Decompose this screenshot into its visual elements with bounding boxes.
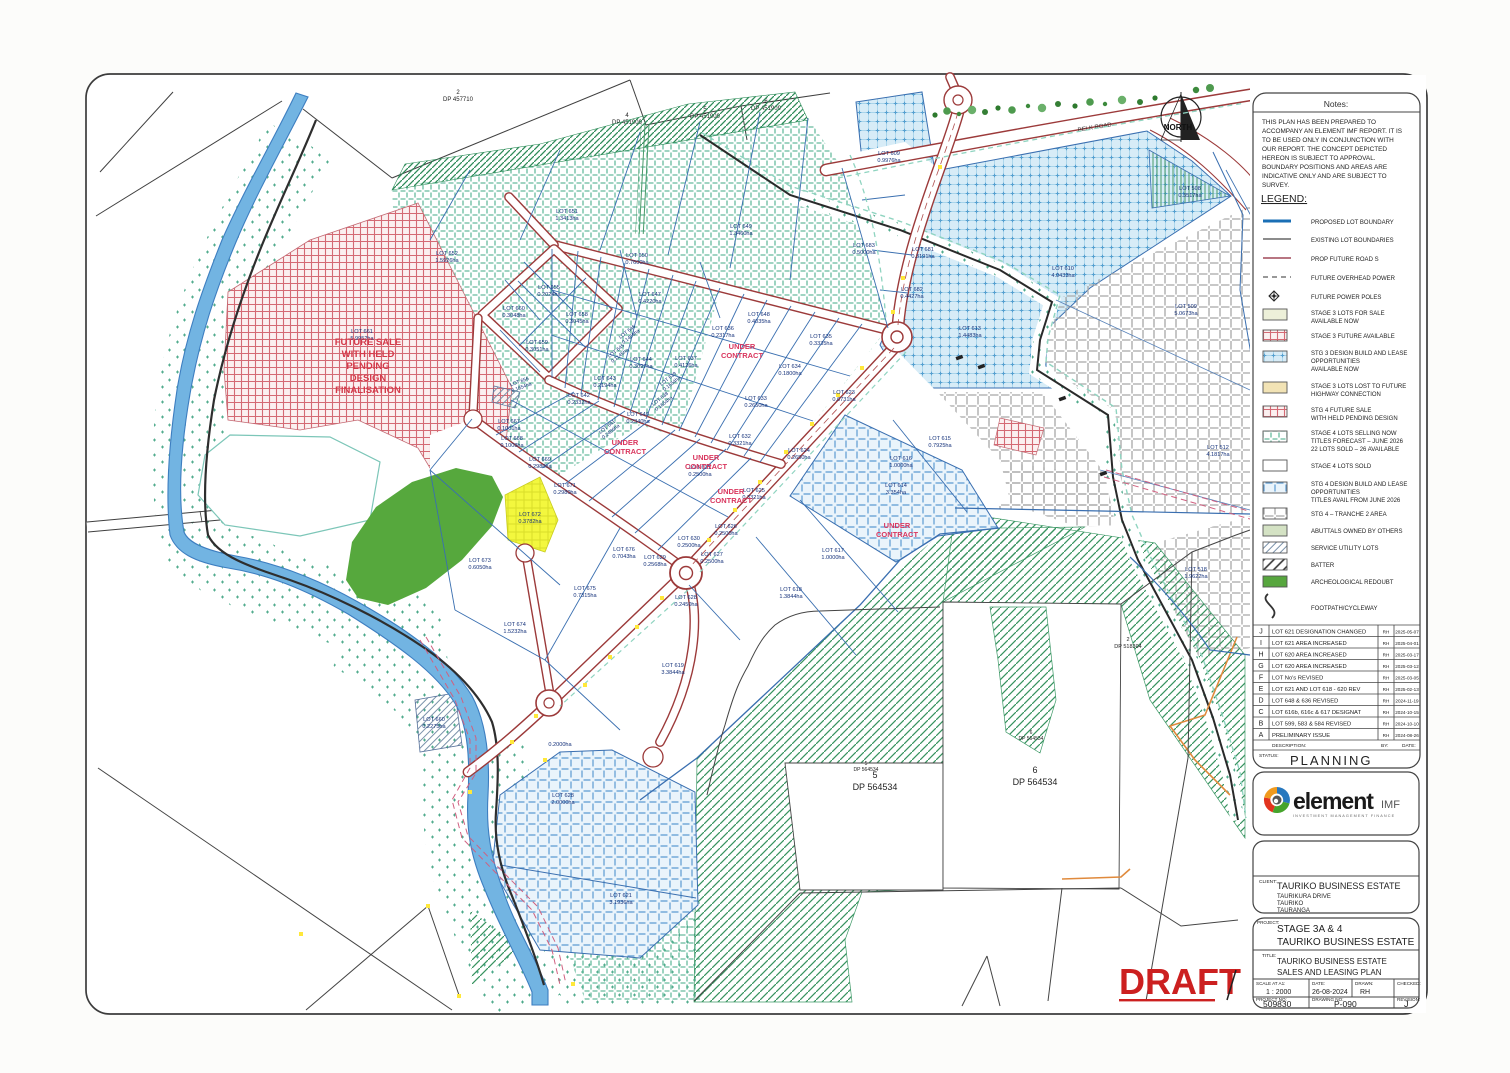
svg-text:RH: RH xyxy=(1383,698,1390,703)
svg-text:F: F xyxy=(1259,674,1263,681)
svg-text:0.2340ha: 0.2340ha xyxy=(626,419,650,425)
svg-text:RH: RH xyxy=(1383,664,1390,669)
svg-text:0.2650ha: 0.2650ha xyxy=(744,403,768,409)
svg-text:RH: RH xyxy=(1383,675,1390,680)
svg-text:0.2980ha: 0.2980ha xyxy=(553,490,577,496)
svg-text:STG 4 – TRANCHE 2 AREA: STG 4 – TRANCHE 2 AREA xyxy=(1311,512,1387,518)
svg-text:LOT 629: LOT 629 xyxy=(644,555,666,561)
svg-text:LOT 648: LOT 648 xyxy=(748,312,770,318)
svg-text:I: I xyxy=(1260,640,1262,647)
svg-text:0.7315ha: 0.7315ha xyxy=(573,593,597,599)
svg-text:TAURIKO: TAURIKO xyxy=(1277,901,1304,907)
svg-text:LOT 651: LOT 651 xyxy=(556,209,578,215)
svg-text:UNDER: UNDER xyxy=(718,487,745,496)
svg-text:1 : 2000: 1 : 2000 xyxy=(1266,989,1291,996)
svg-text:ABUTTALS OWNED BY OTHERS: ABUTTALS OWNED BY OTHERS xyxy=(1311,529,1402,535)
svg-text:TITLES FORECAST – JUNE 2026: TITLES FORECAST – JUNE 2026 xyxy=(1311,439,1404,445)
svg-text:LOT 626: LOT 626 xyxy=(715,524,737,530)
svg-text:C: C xyxy=(1258,709,1263,716)
svg-text:0.2980ha: 0.2980ha xyxy=(528,464,552,470)
svg-text:B: B xyxy=(1259,720,1264,727)
svg-text:LOT 668: LOT 668 xyxy=(501,436,523,442)
svg-text:LOT 621 AREA INCREASED: LOT 621 AREA INCREASED xyxy=(1272,641,1347,647)
svg-text:RH: RH xyxy=(1383,652,1390,657)
svg-text:LOT 627: LOT 627 xyxy=(701,552,723,558)
svg-text:LOT 647: LOT 647 xyxy=(639,292,661,298)
svg-text:LOT No's REVISED: LOT No's REVISED xyxy=(1272,675,1323,681)
svg-text:J: J xyxy=(1404,999,1409,1009)
svg-text:LOT 620 AREA INCREASED: LOT 620 AREA INCREASED xyxy=(1272,652,1347,658)
svg-text:2: 2 xyxy=(1126,637,1129,643)
svg-text:3.1936ha: 3.1936ha xyxy=(609,900,633,906)
svg-text:FOOTPATH/CYCLEWAY: FOOTPATH/CYCLEWAY xyxy=(1311,606,1377,612)
svg-text:2025-03-12: 2025-03-12 xyxy=(1395,664,1419,669)
svg-text:HIGHWAY CONNECTION: HIGHWAY CONNECTION xyxy=(1311,392,1381,398)
svg-text:0.3045ha: 0.3045ha xyxy=(565,319,589,325)
svg-text:2025-03-05: 2025-03-05 xyxy=(1395,675,1419,680)
svg-text:0.1800ha: 0.1800ha xyxy=(778,371,802,377)
svg-text:4.0433ha: 4.0433ha xyxy=(1051,273,1075,279)
svg-text:0.6050ha: 0.6050ha xyxy=(468,565,492,571)
svg-text:509830: 509830 xyxy=(1263,999,1292,1009)
svg-text:0.2568ha: 0.2568ha xyxy=(643,562,667,568)
svg-text:LOT 628: LOT 628 xyxy=(675,595,697,601)
svg-text:STAGE 3A & 4: STAGE 3A & 4 xyxy=(1277,924,1343,935)
svg-text:DESIGN: DESIGN xyxy=(350,373,387,384)
svg-text:TAURIKO BUSINESS ESTATE: TAURIKO BUSINESS ESTATE xyxy=(1277,957,1387,966)
svg-text:0.3335ha: 0.3335ha xyxy=(809,341,833,347)
svg-text:DP 457710: DP 457710 xyxy=(443,97,474,103)
svg-text:STAGE 3 FUTURE AVAILABLE: STAGE 3 FUTURE AVAILABLE xyxy=(1311,334,1395,340)
svg-text:J: J xyxy=(1259,628,1263,635)
svg-text:FUTURE POWER POLES: FUTURE POWER POLES xyxy=(1311,295,1381,301)
svg-text:LOT 509: LOT 509 xyxy=(1175,304,1197,310)
svg-text:PRELIMINARY ISSUE: PRELIMINARY ISSUE xyxy=(1272,733,1330,739)
svg-text:RH: RH xyxy=(1383,629,1390,634)
svg-text:H: H xyxy=(1258,651,1263,658)
svg-text:DATE:: DATE: xyxy=(1312,981,1325,986)
svg-text:1.4483ha: 1.4483ha xyxy=(958,333,982,339)
svg-text:0.2000ha: 0.2000ha xyxy=(548,742,572,748)
svg-text:0.3321ha: 0.3321ha xyxy=(728,441,752,447)
svg-text:ACCOMPANY AN ELEMENT IMF REPO: ACCOMPANY AN ELEMENT IMF REPORT. IT IS xyxy=(1262,128,1402,135)
svg-text:DESCRIPTION:: DESCRIPTION: xyxy=(1272,743,1306,749)
svg-text:2024-10-10: 2024-10-10 xyxy=(1395,721,1419,726)
svg-text:2024-08-26: 2024-08-26 xyxy=(1395,733,1419,738)
svg-text:LOT 615: LOT 615 xyxy=(929,436,951,442)
svg-text:AVAILABLE NOW: AVAILABLE NOW xyxy=(1311,367,1359,373)
svg-text:1.9622ha: 1.9622ha xyxy=(1184,574,1208,580)
svg-text:LOT 682: LOT 682 xyxy=(901,287,923,293)
svg-text:0.2194ha: 0.2194ha xyxy=(593,383,617,389)
svg-text:DRAFT: DRAFT xyxy=(1119,961,1241,1002)
svg-text:0.2024ha: 0.2024ha xyxy=(537,292,561,298)
svg-text:DRAWN:: DRAWN: xyxy=(1355,981,1373,986)
svg-text:0.3517ha: 0.3517ha xyxy=(1178,193,1202,199)
svg-text:0.4126ha: 0.4126ha xyxy=(674,363,698,369)
svg-text:HEREON IS SUBJECT TO APPROVAL: HEREON IS SUBJECT TO APPROVAL. xyxy=(1262,155,1376,162)
svg-text:2024-10-15: 2024-10-15 xyxy=(1395,710,1419,715)
svg-text:DP 564534: DP 564534 xyxy=(853,782,898,792)
svg-text:2025-02-13: 2025-02-13 xyxy=(1395,687,1419,692)
svg-text:LOT 675: LOT 675 xyxy=(574,586,596,592)
svg-text:LOT 599, 583 & 584 REVISED: LOT 599, 583 & 584 REVISED xyxy=(1272,721,1351,727)
svg-text:LOT 673: LOT 673 xyxy=(469,558,491,564)
svg-text:STG 3 DESIGN BUILD AND LEASE: STG 3 DESIGN BUILD AND LEASE xyxy=(1311,351,1407,357)
svg-text:LOT 619: LOT 619 xyxy=(662,663,684,669)
svg-text:LOT 617: LOT 617 xyxy=(822,548,844,554)
svg-text:0.2650ha: 0.2650ha xyxy=(787,455,811,461)
svg-text:PROP FUTURE ROAD S: PROP FUTURE ROAD S xyxy=(1311,257,1379,263)
svg-text:SCALE AT A1:: SCALE AT A1: xyxy=(1256,981,1285,986)
svg-text:4.1817ha: 4.1817ha xyxy=(1206,452,1230,458)
svg-text:CONTRACT: CONTRACT xyxy=(604,447,646,456)
svg-text:RH: RH xyxy=(1360,989,1370,996)
svg-text:LOT 609: LOT 609 xyxy=(878,151,900,157)
svg-text:TITLE:: TITLE: xyxy=(1262,953,1276,959)
svg-text:2025-03-17: 2025-03-17 xyxy=(1395,652,1419,657)
svg-text:UNDER: UNDER xyxy=(612,438,639,447)
svg-text:STAGE 3 LOTS FOR SALE: STAGE 3 LOTS FOR SALE xyxy=(1311,311,1385,317)
svg-text:PENDING: PENDING xyxy=(346,361,389,372)
svg-text:LOT 660: LOT 660 xyxy=(503,306,525,312)
svg-text:STG 4 FUTURE SALE: STG 4 FUTURE SALE xyxy=(1311,408,1371,414)
svg-text:NORTH: NORTH xyxy=(1164,123,1193,132)
svg-text:3.354ha: 3.354ha xyxy=(886,490,907,496)
svg-text:0.3097ha: 0.3097ha xyxy=(629,364,653,370)
svg-text:LOT 621 DESIGNATION CHANGED: LOT 621 DESIGNATION CHANGED xyxy=(1272,629,1366,635)
svg-text:OPPORTUNITIES: OPPORTUNITIES xyxy=(1311,359,1360,365)
svg-text:0.6731ha: 0.6731ha xyxy=(832,397,856,403)
svg-text:LOT 616b, 616c & 617 DESIGNAT: LOT 616b, 616c & 617 DESIGNAT xyxy=(1272,710,1361,716)
svg-text:LOT 661: LOT 661 xyxy=(351,329,373,335)
svg-text:LEGEND:: LEGEND: xyxy=(1261,193,1307,205)
svg-text:LOT 630: LOT 630 xyxy=(678,536,700,542)
svg-text:CONTRACT: CONTRACT xyxy=(710,496,752,505)
svg-text:PROJECT:: PROJECT: xyxy=(1257,920,1279,925)
svg-text:26-08-2024: 26-08-2024 xyxy=(1312,989,1348,996)
svg-text:LOT 628: LOT 628 xyxy=(552,793,574,799)
svg-text:LOT 659: LOT 659 xyxy=(526,340,548,346)
svg-text:DP 564534: DP 564534 xyxy=(854,767,879,773)
svg-text:LOT 610: LOT 610 xyxy=(1052,266,1074,272)
svg-text:TAURANGA: TAURANGA xyxy=(1277,908,1310,914)
svg-text:5.0673ha: 5.0673ha xyxy=(1174,311,1198,317)
svg-text:0.7043ha: 0.7043ha xyxy=(612,554,636,560)
svg-text:LOT 671: LOT 671 xyxy=(554,483,576,489)
svg-text:LOT 625: LOT 625 xyxy=(743,488,765,494)
svg-text:INDICATIVE ONLY AND ARE SUBJE: INDICATIVE ONLY AND ARE SUBJECT TO xyxy=(1262,173,1387,180)
svg-text:LOT 614: LOT 614 xyxy=(885,483,907,489)
svg-text:22 LOTS SOLD – 26 AVAILABLE: 22 LOTS SOLD – 26 AVAILABLE xyxy=(1311,447,1399,453)
svg-text:REVISION:: REVISION: xyxy=(1397,997,1420,1002)
svg-text:RH: RH xyxy=(1383,710,1390,715)
svg-text:LOT 681: LOT 681 xyxy=(912,247,934,253)
svg-text:CONTRACT: CONTRACT xyxy=(876,530,918,539)
svg-text:PROPOSED LOT BOUNDARY: PROPOSED LOT BOUNDARY xyxy=(1311,220,1394,226)
svg-text:1.5926ha: 1.5926ha xyxy=(435,258,459,264)
svg-text:FUTURE OVERHEAD POWER: FUTURE OVERHEAD POWER xyxy=(1311,276,1396,282)
svg-text:LOT 616: LOT 616 xyxy=(890,456,912,462)
svg-text:0.2500ha: 0.2500ha xyxy=(714,531,738,537)
svg-text:SERVICE UTILITY LOTS: SERVICE UTILITY LOTS xyxy=(1311,546,1378,552)
svg-text:EXISTING LOT BOUNDARIES: EXISTING LOT BOUNDARIES xyxy=(1311,238,1394,244)
svg-text:LOT 508: LOT 508 xyxy=(1179,186,1201,192)
svg-text:LOT 624: LOT 624 xyxy=(788,448,810,454)
svg-text:E: E xyxy=(1259,686,1264,693)
svg-text:BOUNDARY POSITIONS AND AREAS A: BOUNDARY POSITIONS AND AREAS ARE xyxy=(1262,164,1387,171)
svg-text:TAURIKURA DRIVE: TAURIKURA DRIVE xyxy=(1277,894,1331,900)
svg-text:LOT 623: LOT 623 xyxy=(833,390,855,396)
svg-text:ARCHEOLOGICAL REDOUBT: ARCHEOLOGICAL REDOUBT xyxy=(1311,580,1394,586)
svg-text:0.2500ha: 0.2500ha xyxy=(677,543,701,549)
svg-text:WITH HELD PENDING DESIGN: WITH HELD PENDING DESIGN xyxy=(1311,416,1398,422)
svg-text:RH: RH xyxy=(1383,641,1390,646)
svg-text:LOT 632: LOT 632 xyxy=(729,434,751,440)
svg-text:0.2317ha: 0.2317ha xyxy=(711,333,735,339)
svg-text:LOT 634: LOT 634 xyxy=(779,364,801,370)
svg-text:2.0000ha: 2.0000ha xyxy=(551,800,575,806)
svg-text:0.2500ha: 0.2500ha xyxy=(688,472,712,478)
svg-text:0.3048ha: 0.3048ha xyxy=(502,313,526,319)
svg-text:0.7925ha: 0.7925ha xyxy=(928,443,952,449)
svg-text:FINALISATION: FINALISATION xyxy=(335,385,401,396)
svg-text:LOT 618: LOT 618 xyxy=(780,587,802,593)
svg-text:RH: RH xyxy=(1383,733,1390,738)
svg-text:1.3844ha: 1.3844ha xyxy=(779,594,803,600)
svg-text:DP 564534: DP 564534 xyxy=(1019,736,1044,742)
svg-text:SALES AND LEASING PLAN: SALES AND LEASING PLAN xyxy=(1277,968,1382,977)
svg-text:LOT 620 AREA INCREASED: LOT 620 AREA INCREASED xyxy=(1272,664,1347,670)
svg-text:0.1001ha: 0.1001ha xyxy=(497,426,521,432)
svg-text:FUTURE SALE: FUTURE SALE xyxy=(335,337,402,348)
svg-text:LOT 633: LOT 633 xyxy=(745,396,767,402)
svg-text:1.0000ha: 1.0000ha xyxy=(821,555,845,561)
svg-text:LOT 642: LOT 642 xyxy=(568,393,590,399)
svg-text:CONTRACT: CONTRACT xyxy=(721,351,763,360)
svg-text:STATUS:: STATUS: xyxy=(1259,753,1279,759)
svg-text:TAURIKO BUSINESS ESTATE: TAURIKO BUSINESS ESTATE xyxy=(1277,881,1401,891)
svg-text:IMF: IMF xyxy=(1381,799,1400,811)
svg-text:UNDER: UNDER xyxy=(884,521,911,530)
svg-text:1.3460ha: 1.3460ha xyxy=(729,231,753,237)
svg-text:LOT 660: LOT 660 xyxy=(423,717,445,723)
svg-text:1.0000ha: 1.0000ha xyxy=(889,463,913,469)
svg-text:2025-05-07: 2025-05-07 xyxy=(1395,629,1419,634)
svg-text:0.2450ha: 0.2450ha xyxy=(674,602,698,608)
svg-text:LOT 621 AND LOT 618 - 620 REV: LOT 621 AND LOT 618 - 620 REV xyxy=(1272,687,1361,693)
svg-text:0.3782ha: 0.3782ha xyxy=(518,519,542,525)
svg-text:0.5000ha: 0.5000ha xyxy=(852,250,876,256)
svg-text:G: G xyxy=(1258,663,1263,670)
svg-text:2025-04-01: 2025-04-01 xyxy=(1395,641,1419,646)
svg-text:LOT 667: LOT 667 xyxy=(498,419,520,425)
svg-text:LOT 650: LOT 650 xyxy=(626,253,648,259)
svg-text:AVAILABLE NOW: AVAILABLE NOW xyxy=(1311,319,1359,325)
svg-text:SURVEY.: SURVEY. xyxy=(1262,182,1289,189)
svg-text:6: 6 xyxy=(1032,765,1037,775)
svg-text:LOT 636: LOT 636 xyxy=(712,326,734,332)
svg-text:LOT 644: LOT 644 xyxy=(630,357,652,363)
svg-text:A: A xyxy=(1259,732,1264,739)
svg-text:0.9976ha: 0.9976ha xyxy=(877,158,901,164)
svg-text:LOT 652: LOT 652 xyxy=(436,251,458,257)
svg-text:1.3413ha: 1.3413ha xyxy=(555,216,579,222)
svg-text:CONTRACT: CONTRACT xyxy=(685,462,727,471)
svg-text:LOT 648 & 636 REVISED: LOT 648 & 636 REVISED xyxy=(1272,698,1338,704)
svg-text:element: element xyxy=(1293,788,1374,814)
svg-text:LOT 674: LOT 674 xyxy=(504,622,526,628)
svg-text:DATE:: DATE: xyxy=(1402,743,1416,749)
svg-text:LOT 649: LOT 649 xyxy=(730,224,752,230)
svg-text:PLANNING: PLANNING xyxy=(1290,753,1372,768)
svg-text:LOT 655: LOT 655 xyxy=(538,285,560,291)
svg-text:0.2275ha: 0.2275ha xyxy=(422,724,446,730)
svg-text:CLIENT:: CLIENT: xyxy=(1259,879,1277,885)
svg-text:RH: RH xyxy=(1383,721,1390,726)
svg-text:LOT 683: LOT 683 xyxy=(853,243,875,249)
svg-text:3.3844ha: 3.3844ha xyxy=(661,670,685,676)
svg-text:0.3051ha: 0.3051ha xyxy=(525,347,549,353)
svg-text:LOT 643: LOT 643 xyxy=(594,376,616,382)
svg-text:0.1008ha: 0.1008ha xyxy=(500,443,524,449)
svg-text:0.2332ha: 0.2332ha xyxy=(567,400,591,406)
svg-text:STAGE 4 LOTS SOLD: STAGE 4 LOTS SOLD xyxy=(1311,464,1372,470)
svg-text:TAURIKO BUSINESS ESTATE: TAURIKO BUSINESS ESTATE xyxy=(1277,937,1415,948)
svg-text:LOT 518: LOT 518 xyxy=(1185,567,1207,573)
svg-text:UNDER: UNDER xyxy=(693,453,720,462)
svg-text:LOT 637: LOT 637 xyxy=(675,356,697,362)
svg-text:RH: RH xyxy=(1383,687,1390,692)
svg-text:OUR REPORT. THE CONCEPT DEPIC: OUR REPORT. THE CONCEPT DEPICTED xyxy=(1262,146,1387,153)
svg-text:0.4427ha: 0.4427ha xyxy=(900,294,924,300)
svg-text:LOT 676: LOT 676 xyxy=(613,547,635,553)
svg-text:INVESTMENT MANAGEMENT FINANCE: INVESTMENT MANAGEMENT FINANCE xyxy=(1293,814,1395,818)
svg-text:STG 4 DESIGN BUILD AND LEASE: STG 4 DESIGN BUILD AND LEASE xyxy=(1311,482,1407,488)
svg-text:DP 564534: DP 564534 xyxy=(1013,777,1058,787)
svg-text:LOT 621: LOT 621 xyxy=(610,893,632,899)
svg-text:LOT 672: LOT 672 xyxy=(519,512,541,518)
svg-text:Notes:: Notes: xyxy=(1324,99,1349,109)
svg-text:TO BE USED ONLY IN CONJUNCTIO: TO BE USED ONLY IN CONJUNCTION WITH xyxy=(1262,137,1394,144)
svg-text:1.5232ha: 1.5232ha xyxy=(503,629,527,635)
svg-text:LOT 669: LOT 669 xyxy=(529,457,551,463)
svg-text:LOT 658: LOT 658 xyxy=(566,312,588,318)
svg-text:LOT 640: LOT 640 xyxy=(627,412,649,418)
svg-text:0.4035ha: 0.4035ha xyxy=(747,319,771,325)
svg-text:0.7600ha: 0.7600ha xyxy=(625,260,649,266)
svg-text:0.3191ha: 0.3191ha xyxy=(911,254,935,260)
svg-text:DP 518304: DP 518304 xyxy=(1114,644,1141,650)
svg-text:TITLES AVAIL FROM JUNE 2026: TITLES AVAIL FROM JUNE 2026 xyxy=(1311,498,1401,504)
svg-text:OPPORTUNITIES: OPPORTUNITIES xyxy=(1311,490,1360,496)
svg-text:0.2500ha: 0.2500ha xyxy=(700,559,724,565)
svg-text:CHECKED:: CHECKED: xyxy=(1397,981,1421,986)
svg-text:P-090: P-090 xyxy=(1334,999,1357,1009)
svg-text:LOT 613: LOT 613 xyxy=(959,326,981,332)
svg-text:D: D xyxy=(1258,697,1263,704)
svg-text:BY:: BY: xyxy=(1381,743,1388,749)
svg-text:WITH HELD: WITH HELD xyxy=(342,349,395,360)
svg-text:UNDER: UNDER xyxy=(729,342,756,351)
svg-text:BATTER: BATTER xyxy=(1311,563,1335,569)
svg-text:0.4220ha: 0.4220ha xyxy=(638,299,662,305)
svg-text:STAGE 4 LOTS SELLING NOW: STAGE 4 LOTS SELLING NOW xyxy=(1311,431,1397,437)
svg-text:THIS PLAN HAS BEEN PREPARED TO: THIS PLAN HAS BEEN PREPARED TO xyxy=(1262,119,1376,126)
svg-text:STAGE 3 LOTS LOST TO FUTURE: STAGE 3 LOTS LOST TO FUTURE xyxy=(1311,384,1406,390)
svg-text:LOT 512: LOT 512 xyxy=(1207,445,1229,451)
svg-text:LOT 635: LOT 635 xyxy=(810,334,832,340)
svg-text:2024-11-19: 2024-11-19 xyxy=(1395,698,1419,703)
